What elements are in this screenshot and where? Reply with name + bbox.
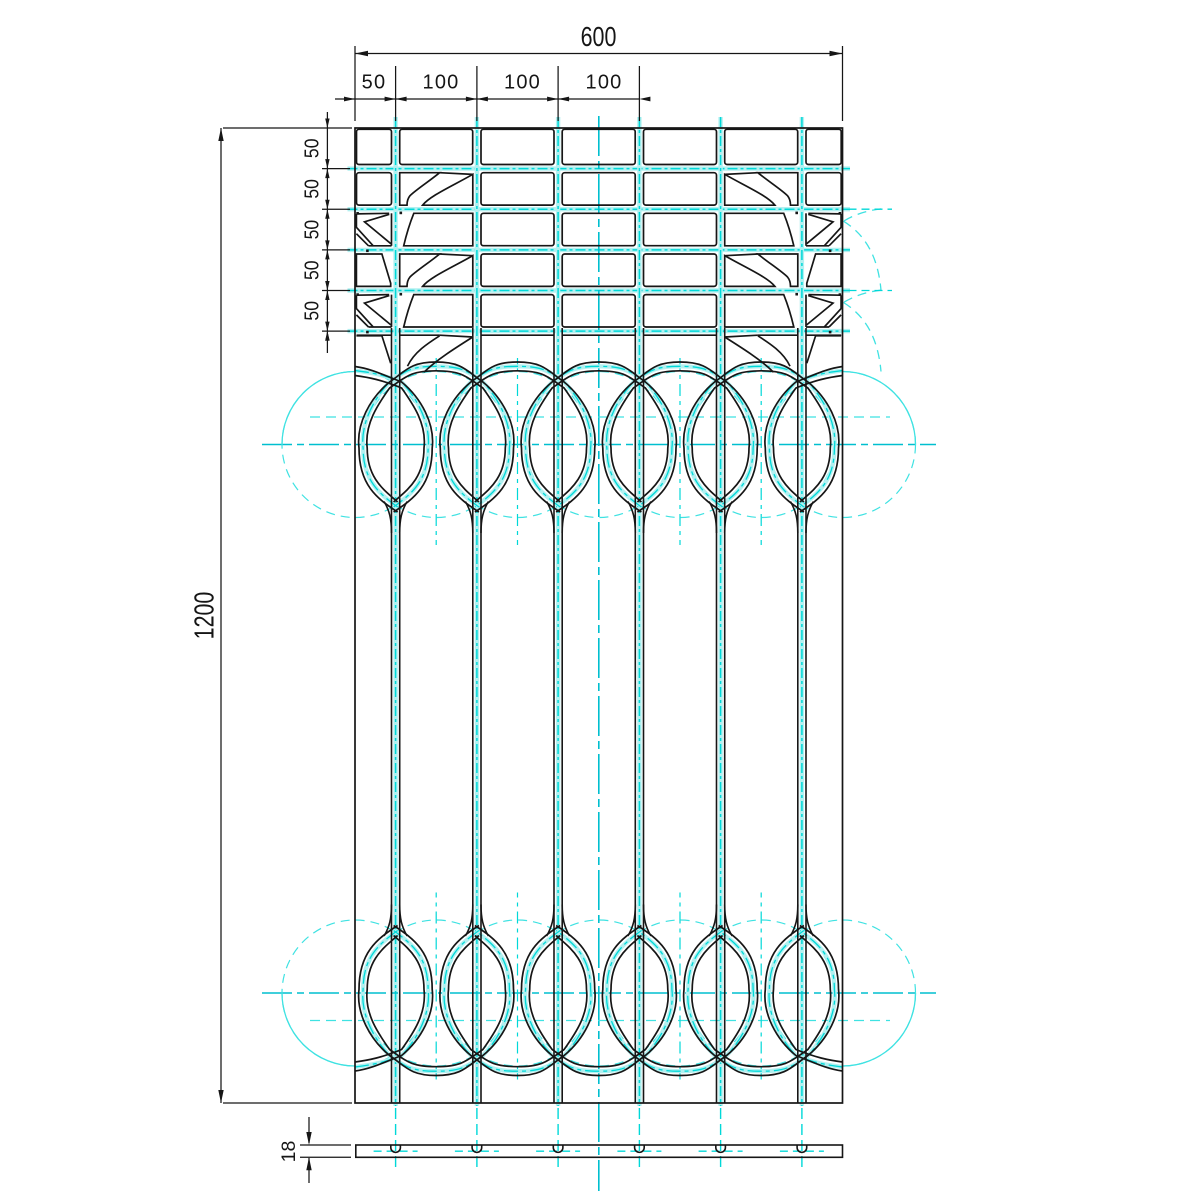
svg-text:50: 50 <box>300 260 322 280</box>
svg-text:100: 100 <box>586 72 623 94</box>
svg-text:50: 50 <box>300 139 322 159</box>
svg-text:1200: 1200 <box>190 592 220 640</box>
svg-text:50: 50 <box>362 72 387 94</box>
svg-text:600: 600 <box>581 23 617 53</box>
svg-text:50: 50 <box>300 220 322 240</box>
svg-text:100: 100 <box>504 72 541 94</box>
svg-text:50: 50 <box>300 179 322 199</box>
svg-text:50: 50 <box>300 301 322 321</box>
svg-text:100: 100 <box>423 72 460 94</box>
svg-text:18: 18 <box>278 1141 300 1163</box>
